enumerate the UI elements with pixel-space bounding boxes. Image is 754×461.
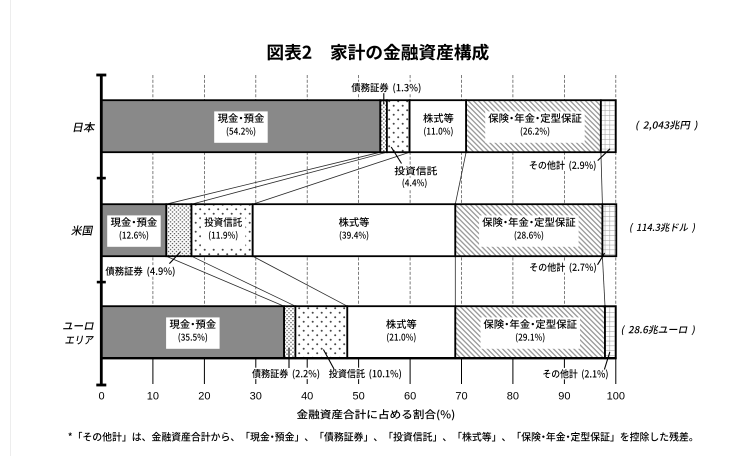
svg-text:0: 0 bbox=[98, 391, 104, 403]
svg-text:70: 70 bbox=[455, 391, 467, 403]
svg-text:100: 100 bbox=[607, 391, 625, 403]
svg-text:60: 60 bbox=[404, 391, 416, 403]
svg-text:30: 30 bbox=[250, 391, 262, 403]
svg-text:80: 80 bbox=[507, 391, 519, 403]
svg-text:20: 20 bbox=[198, 391, 210, 403]
svg-text:40: 40 bbox=[301, 391, 313, 403]
svg-text:90: 90 bbox=[558, 391, 570, 403]
svg-text:10: 10 bbox=[147, 391, 159, 403]
svg-text:50: 50 bbox=[352, 391, 364, 403]
